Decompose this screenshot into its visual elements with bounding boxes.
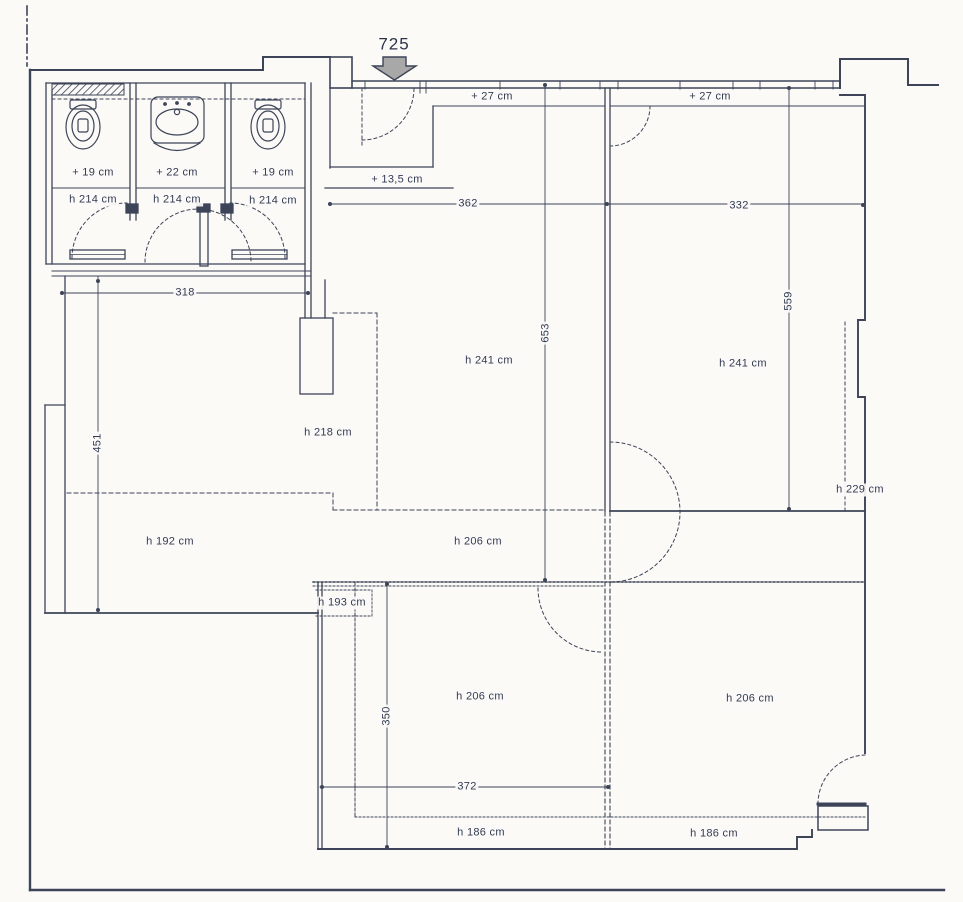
top-right-bumpout (840, 59, 938, 88)
ceiling-height-label: h 206 cm (452, 536, 504, 549)
level-offset-label: + 22 cm (154, 167, 200, 180)
dimension-label-451: 451 (92, 431, 105, 454)
dimension-label-559: 559 (783, 289, 796, 312)
level-offset-label: + 27 cm (687, 91, 733, 104)
door-hinge (126, 204, 138, 213)
door-swing-arc (610, 442, 680, 582)
window-hatch (52, 84, 124, 95)
door-swing-arc (610, 106, 650, 146)
ceiling-height-label: h 241 cm (717, 358, 769, 371)
bathroom-block (46, 83, 333, 394)
ceiling-height-label: h 214 cm (151, 194, 203, 207)
ceiling-zone-lines (67, 313, 865, 817)
ceiling-height-label: h 218 cm (302, 427, 354, 440)
ceiling-height-label: h 241 cm (463, 355, 515, 368)
dimension-label-350: 350 (381, 704, 394, 727)
toilet-icon (66, 100, 100, 149)
sink-icon (151, 97, 204, 151)
bathroom-fixtures (66, 97, 285, 151)
ceiling-height-label: h 186 cm (455, 827, 507, 840)
entry-arrow-icon (373, 57, 416, 80)
ceiling-height-label: h 186 cm (688, 828, 740, 841)
chimney (300, 318, 333, 394)
doors (362, 88, 865, 804)
level-offset-label: + 13,5 cm (369, 174, 424, 187)
dimension-label-318: 318 (173, 287, 196, 300)
door-swing-arc (538, 588, 602, 652)
ceiling-height-label: h 206 cm (724, 693, 776, 706)
stall-door-middle-open (200, 210, 208, 266)
dimension-label-372: 372 (455, 781, 478, 794)
dimension-label-332: 332 (727, 200, 750, 213)
floor-plan: 725 + 27 cm + 27 cm + 19 cm + 22 cm + 19… (0, 0, 963, 902)
level-offset-label: + 19 cm (70, 167, 116, 180)
porch-bumpout (330, 57, 352, 88)
toilet-icon (251, 100, 285, 149)
door-swing-arc (145, 209, 251, 262)
dimension-label-653: 653 (540, 321, 553, 344)
door-hinge (221, 204, 233, 213)
window-mullions (365, 81, 833, 93)
ceiling-height-label: h 206 cm (454, 691, 506, 704)
exterior-walls (30, 57, 944, 890)
ceiling-height-label: h 214 cm (67, 194, 119, 207)
ceiling-height-label: h 193 cm (316, 597, 368, 610)
floor-plan-linework (0, 0, 963, 902)
door-swing-arc (818, 755, 865, 804)
level-offset-label: + 19 cm (250, 167, 296, 180)
dimension-label-725: 725 (376, 38, 411, 51)
level-offset-label: + 27 cm (469, 91, 515, 104)
east-wall (840, 95, 865, 753)
entrance-door-swing-arc (362, 88, 414, 140)
ceiling-height-label: h 214 cm (247, 195, 299, 208)
dimension-label-362: 362 (456, 198, 479, 211)
ceiling-height-label: h 229 cm (834, 484, 886, 497)
ceiling-height-label: h 192 cm (144, 536, 196, 549)
